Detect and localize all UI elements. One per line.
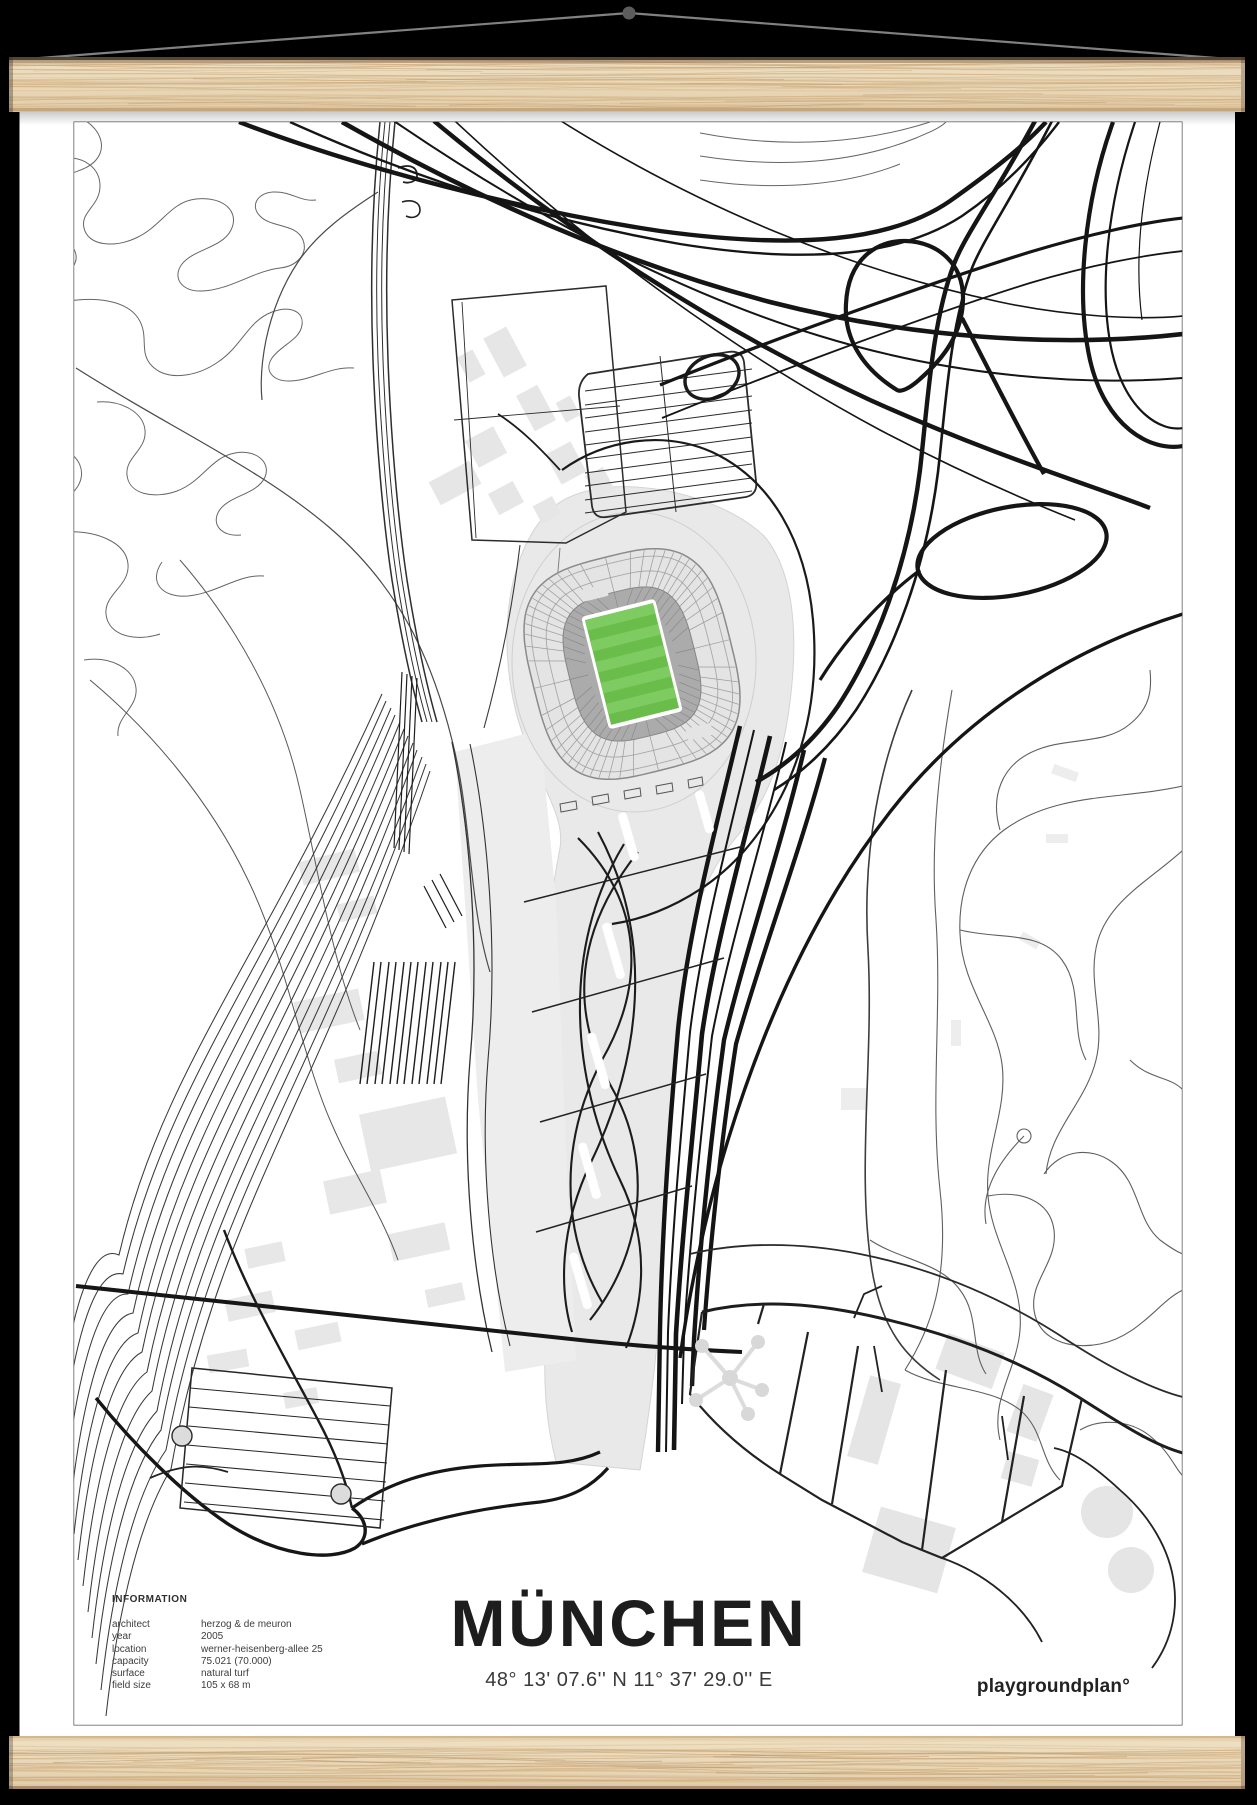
svg-text:werner-heisenberg-allee 25: werner-heisenberg-allee 25 xyxy=(200,1644,323,1655)
svg-text:year: year xyxy=(112,1631,132,1642)
svg-text:48° 13' 07.6'' N 11° 37' 29.0': 48° 13' 07.6'' N 11° 37' 29.0'' E xyxy=(485,1669,772,1691)
svg-text:field size: field size xyxy=(112,1680,151,1691)
svg-text:location: location xyxy=(112,1644,146,1655)
svg-text:playgroundplan°: playgroundplan° xyxy=(977,1676,1130,1697)
svg-text:architect: architect xyxy=(112,1619,150,1630)
svg-text:2005: 2005 xyxy=(201,1631,224,1642)
svg-text:capacity: capacity xyxy=(112,1656,149,1667)
svg-text:INFORMATION: INFORMATION xyxy=(112,1594,187,1605)
svg-text:105 x 68 m: 105 x 68 m xyxy=(201,1680,250,1691)
svg-text:natural turf: natural turf xyxy=(201,1668,249,1679)
svg-text:herzog & de meuron: herzog & de meuron xyxy=(201,1619,292,1630)
svg-text:75.021 (70.000): 75.021 (70.000) xyxy=(201,1656,272,1667)
svg-text:surface: surface xyxy=(112,1668,145,1679)
svg-text:MÜNCHEN: MÜNCHEN xyxy=(451,1586,808,1660)
